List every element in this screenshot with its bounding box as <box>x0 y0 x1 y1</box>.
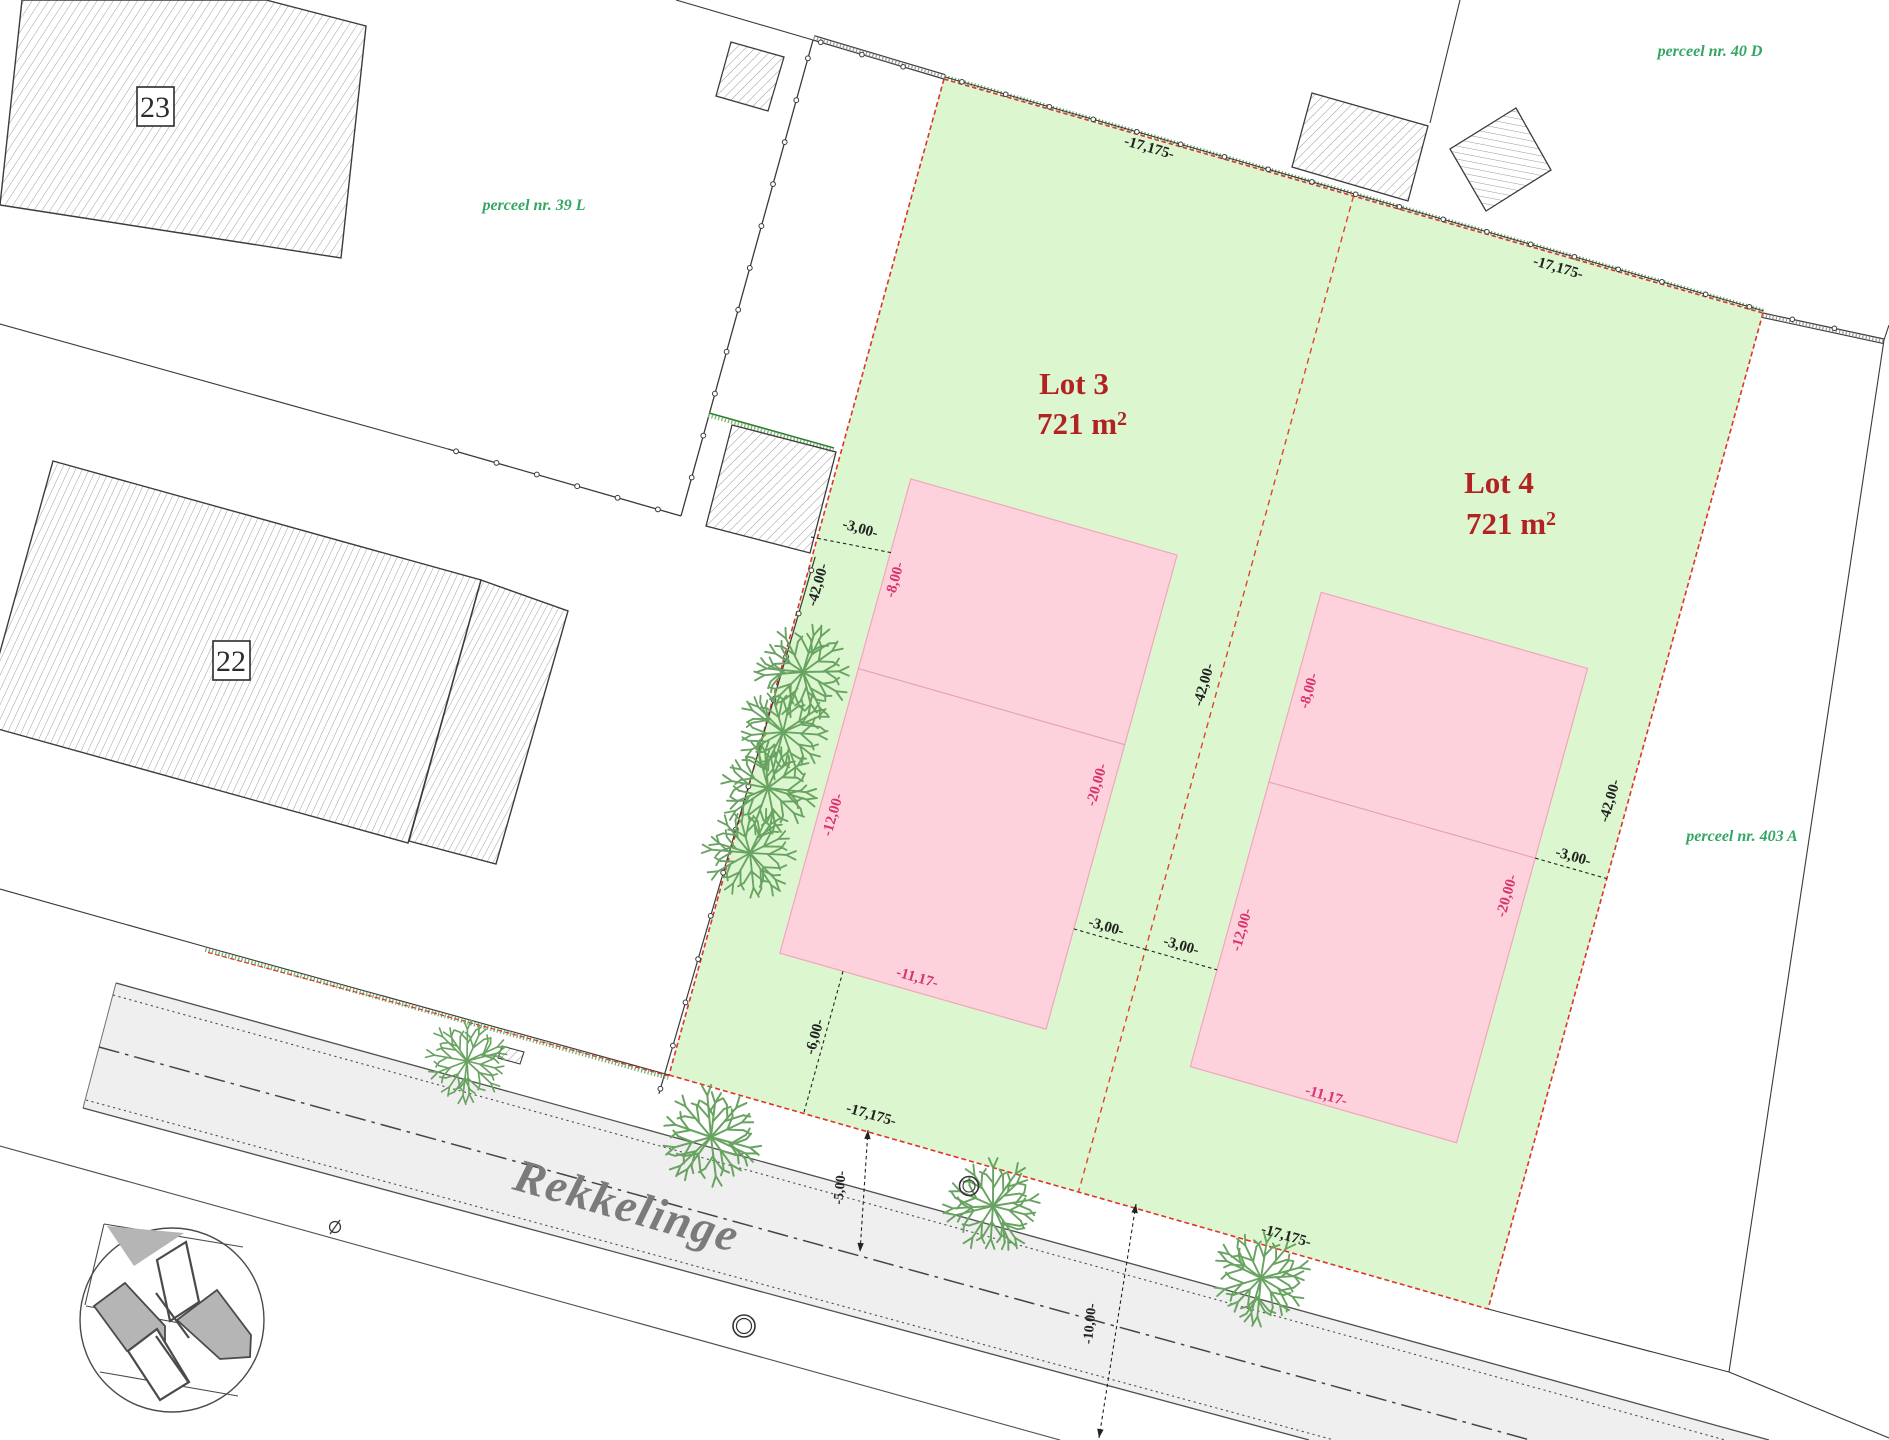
svg-text:Lot 3: Lot 3 <box>1039 366 1109 401</box>
svg-text:721 m2: 721 m2 <box>1466 506 1556 541</box>
svg-text:Lot 4: Lot 4 <box>1464 465 1534 500</box>
svg-text:23: 23 <box>140 91 170 124</box>
svg-text:perceel nr. 403 A: perceel nr. 403 A <box>1684 828 1798 845</box>
svg-text:721 m2: 721 m2 <box>1037 406 1127 441</box>
svg-text:22: 22 <box>216 645 246 678</box>
svg-text:perceel nr. 40 D: perceel nr. 40 D <box>1656 43 1763 60</box>
svg-text:perceel nr. 39 L: perceel nr. 39 L <box>480 197 585 214</box>
